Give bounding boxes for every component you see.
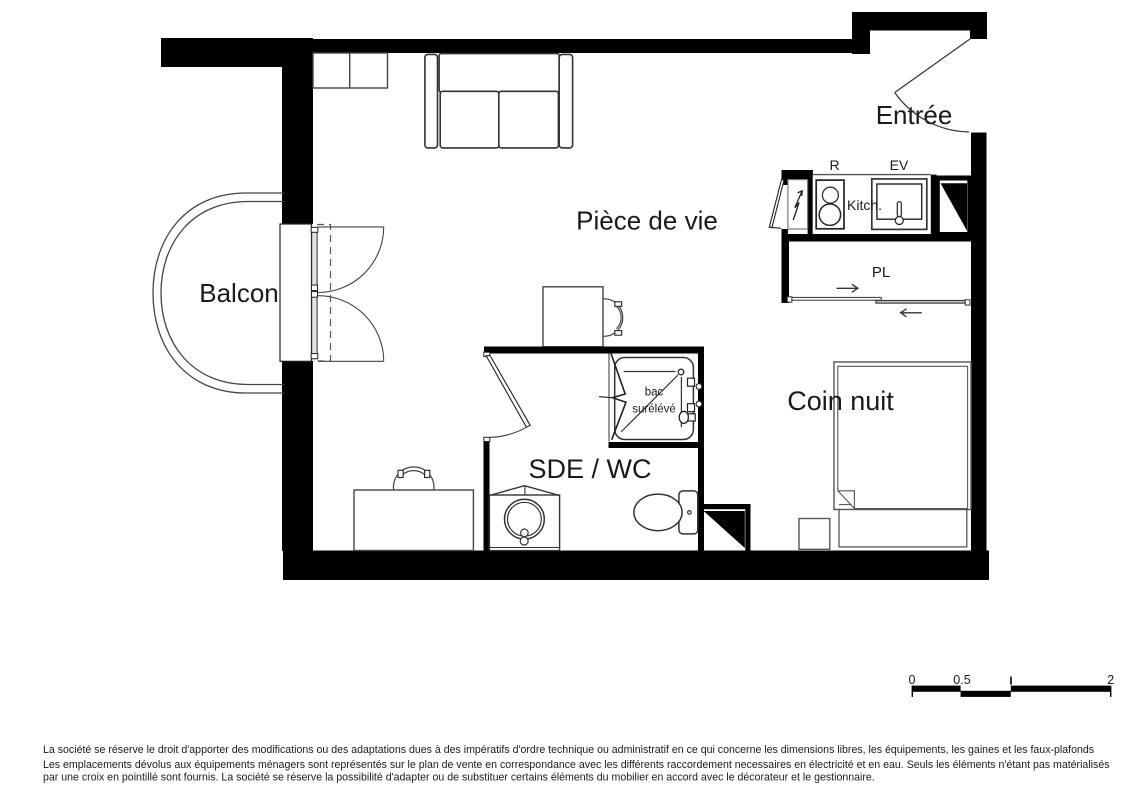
svg-text:EV: EV bbox=[890, 157, 909, 173]
svg-text:R: R bbox=[829, 157, 839, 173]
svg-text:Kitch.: Kitch. bbox=[847, 197, 882, 213]
svg-text:par une croix en pointillé son: par une croix en pointillé sont fournis.… bbox=[43, 771, 875, 783]
svg-text:0: 0 bbox=[909, 673, 916, 687]
svg-text:2: 2 bbox=[1107, 673, 1114, 687]
svg-text:Pièce de vie: Pièce de vie bbox=[576, 206, 718, 236]
svg-text:0.5: 0.5 bbox=[953, 673, 970, 687]
svg-text:Entrée: Entrée bbox=[876, 100, 953, 130]
svg-text:Balcon: Balcon bbox=[199, 278, 279, 308]
svg-text:Les emplacements dévolus aux é: Les emplacements dévolus aux équipements… bbox=[43, 759, 1110, 771]
svg-text:La société se réserve le droit: La société se réserve le droit d'apporte… bbox=[43, 744, 1094, 756]
svg-text:surélévé: surélévé bbox=[632, 404, 675, 416]
svg-text:PL: PL bbox=[872, 264, 890, 281]
svg-text:Coin nuit: Coin nuit bbox=[787, 386, 894, 416]
svg-text:bac: bac bbox=[645, 387, 664, 399]
svg-text:SDE / WC: SDE / WC bbox=[528, 454, 651, 484]
